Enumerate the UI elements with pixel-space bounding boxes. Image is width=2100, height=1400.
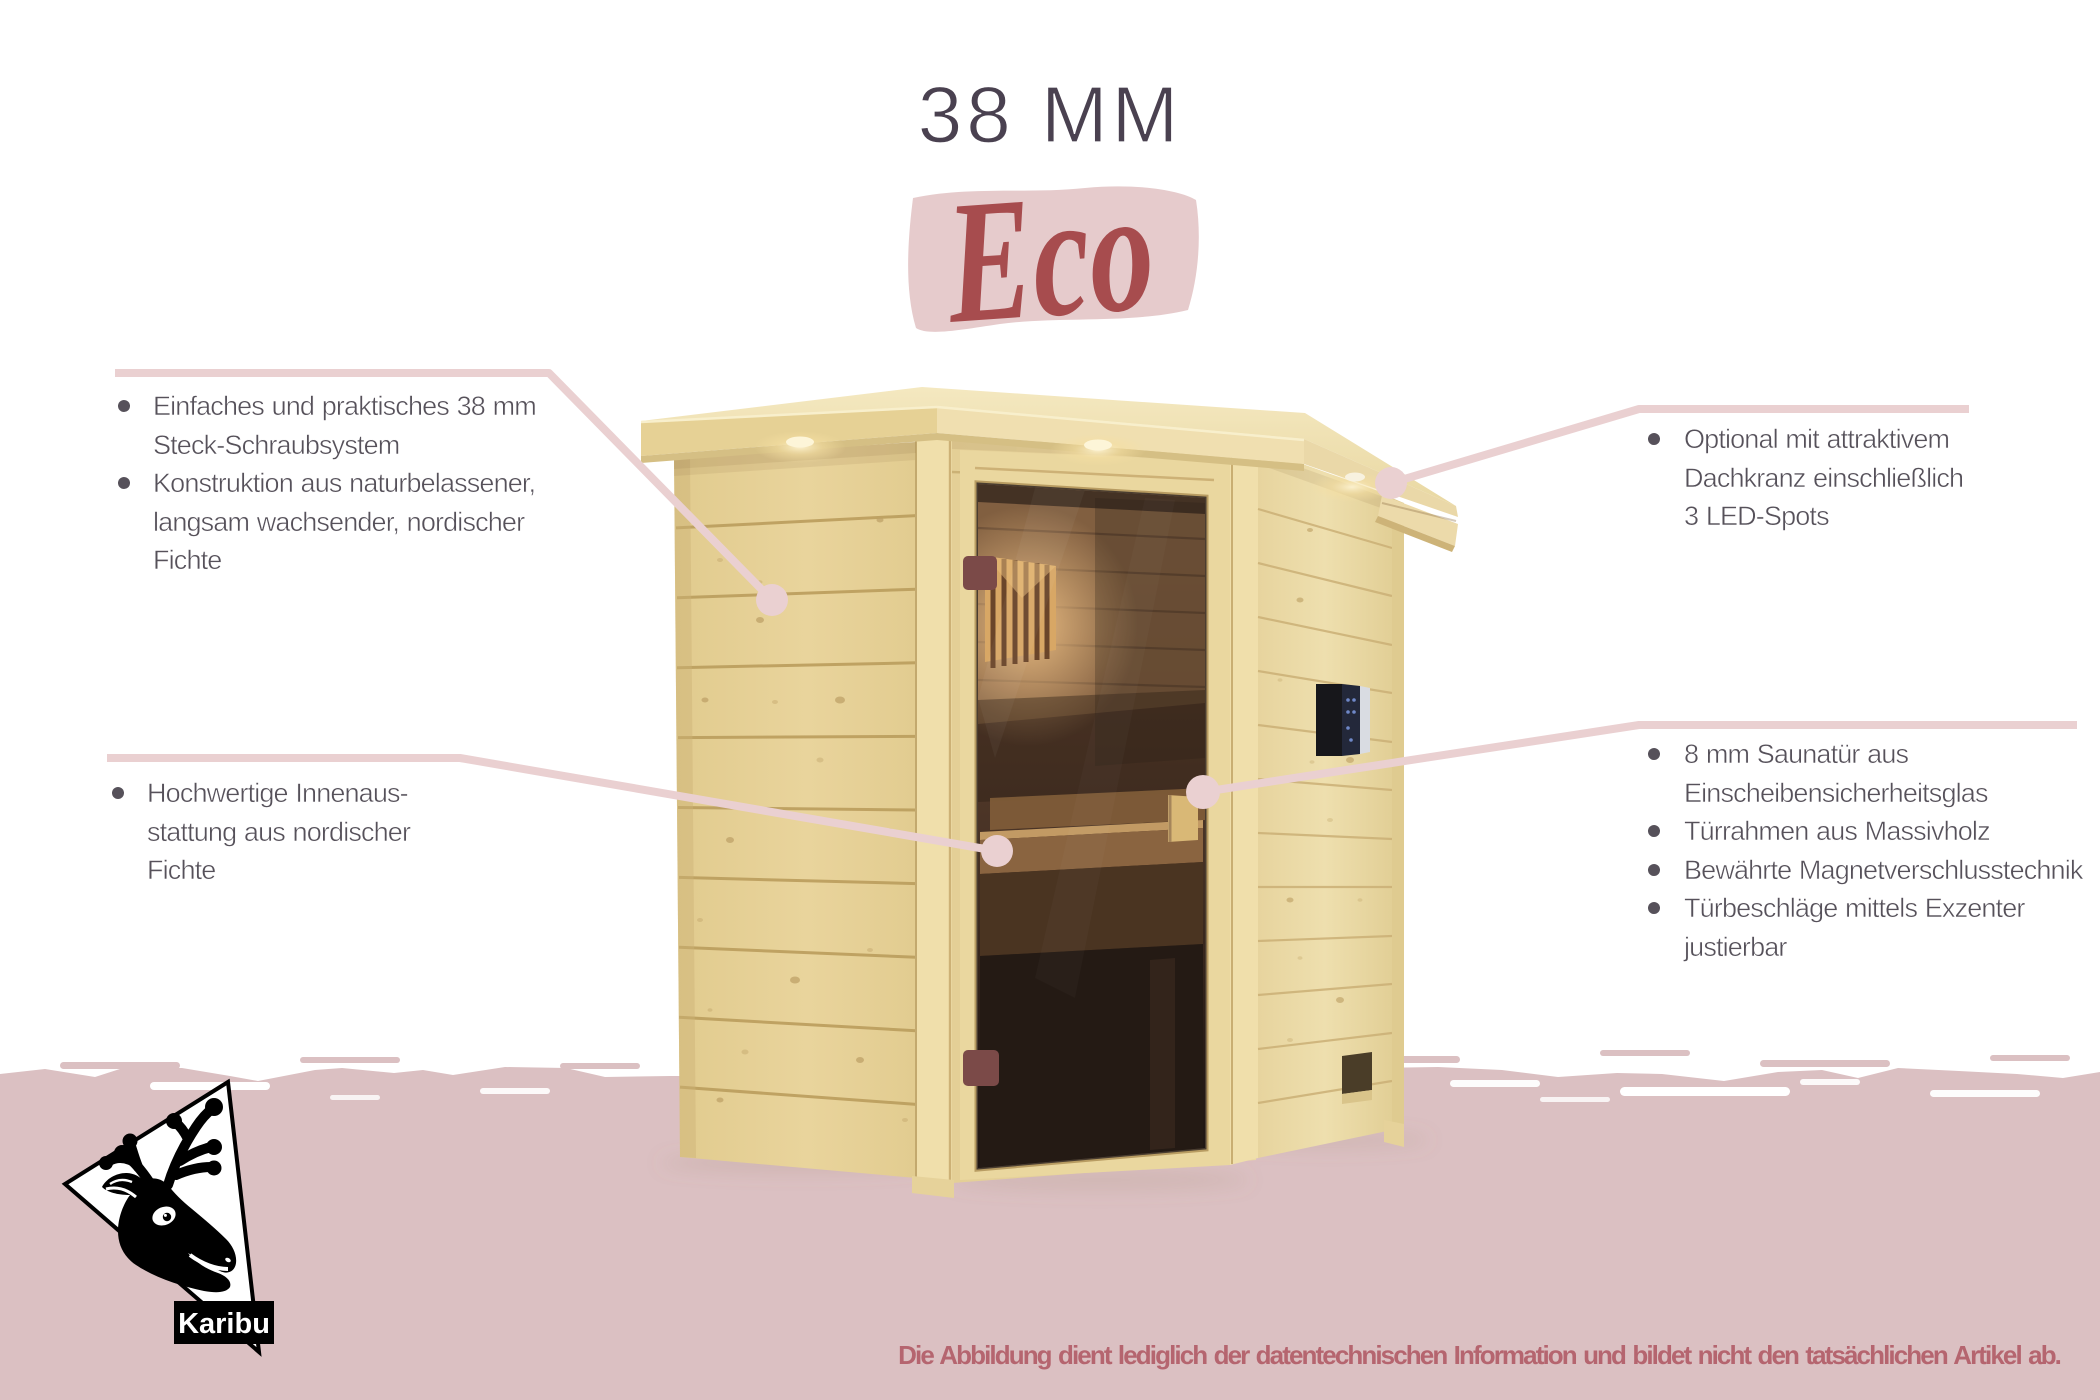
svg-text:Karibu: Karibu — [178, 1308, 270, 1340]
